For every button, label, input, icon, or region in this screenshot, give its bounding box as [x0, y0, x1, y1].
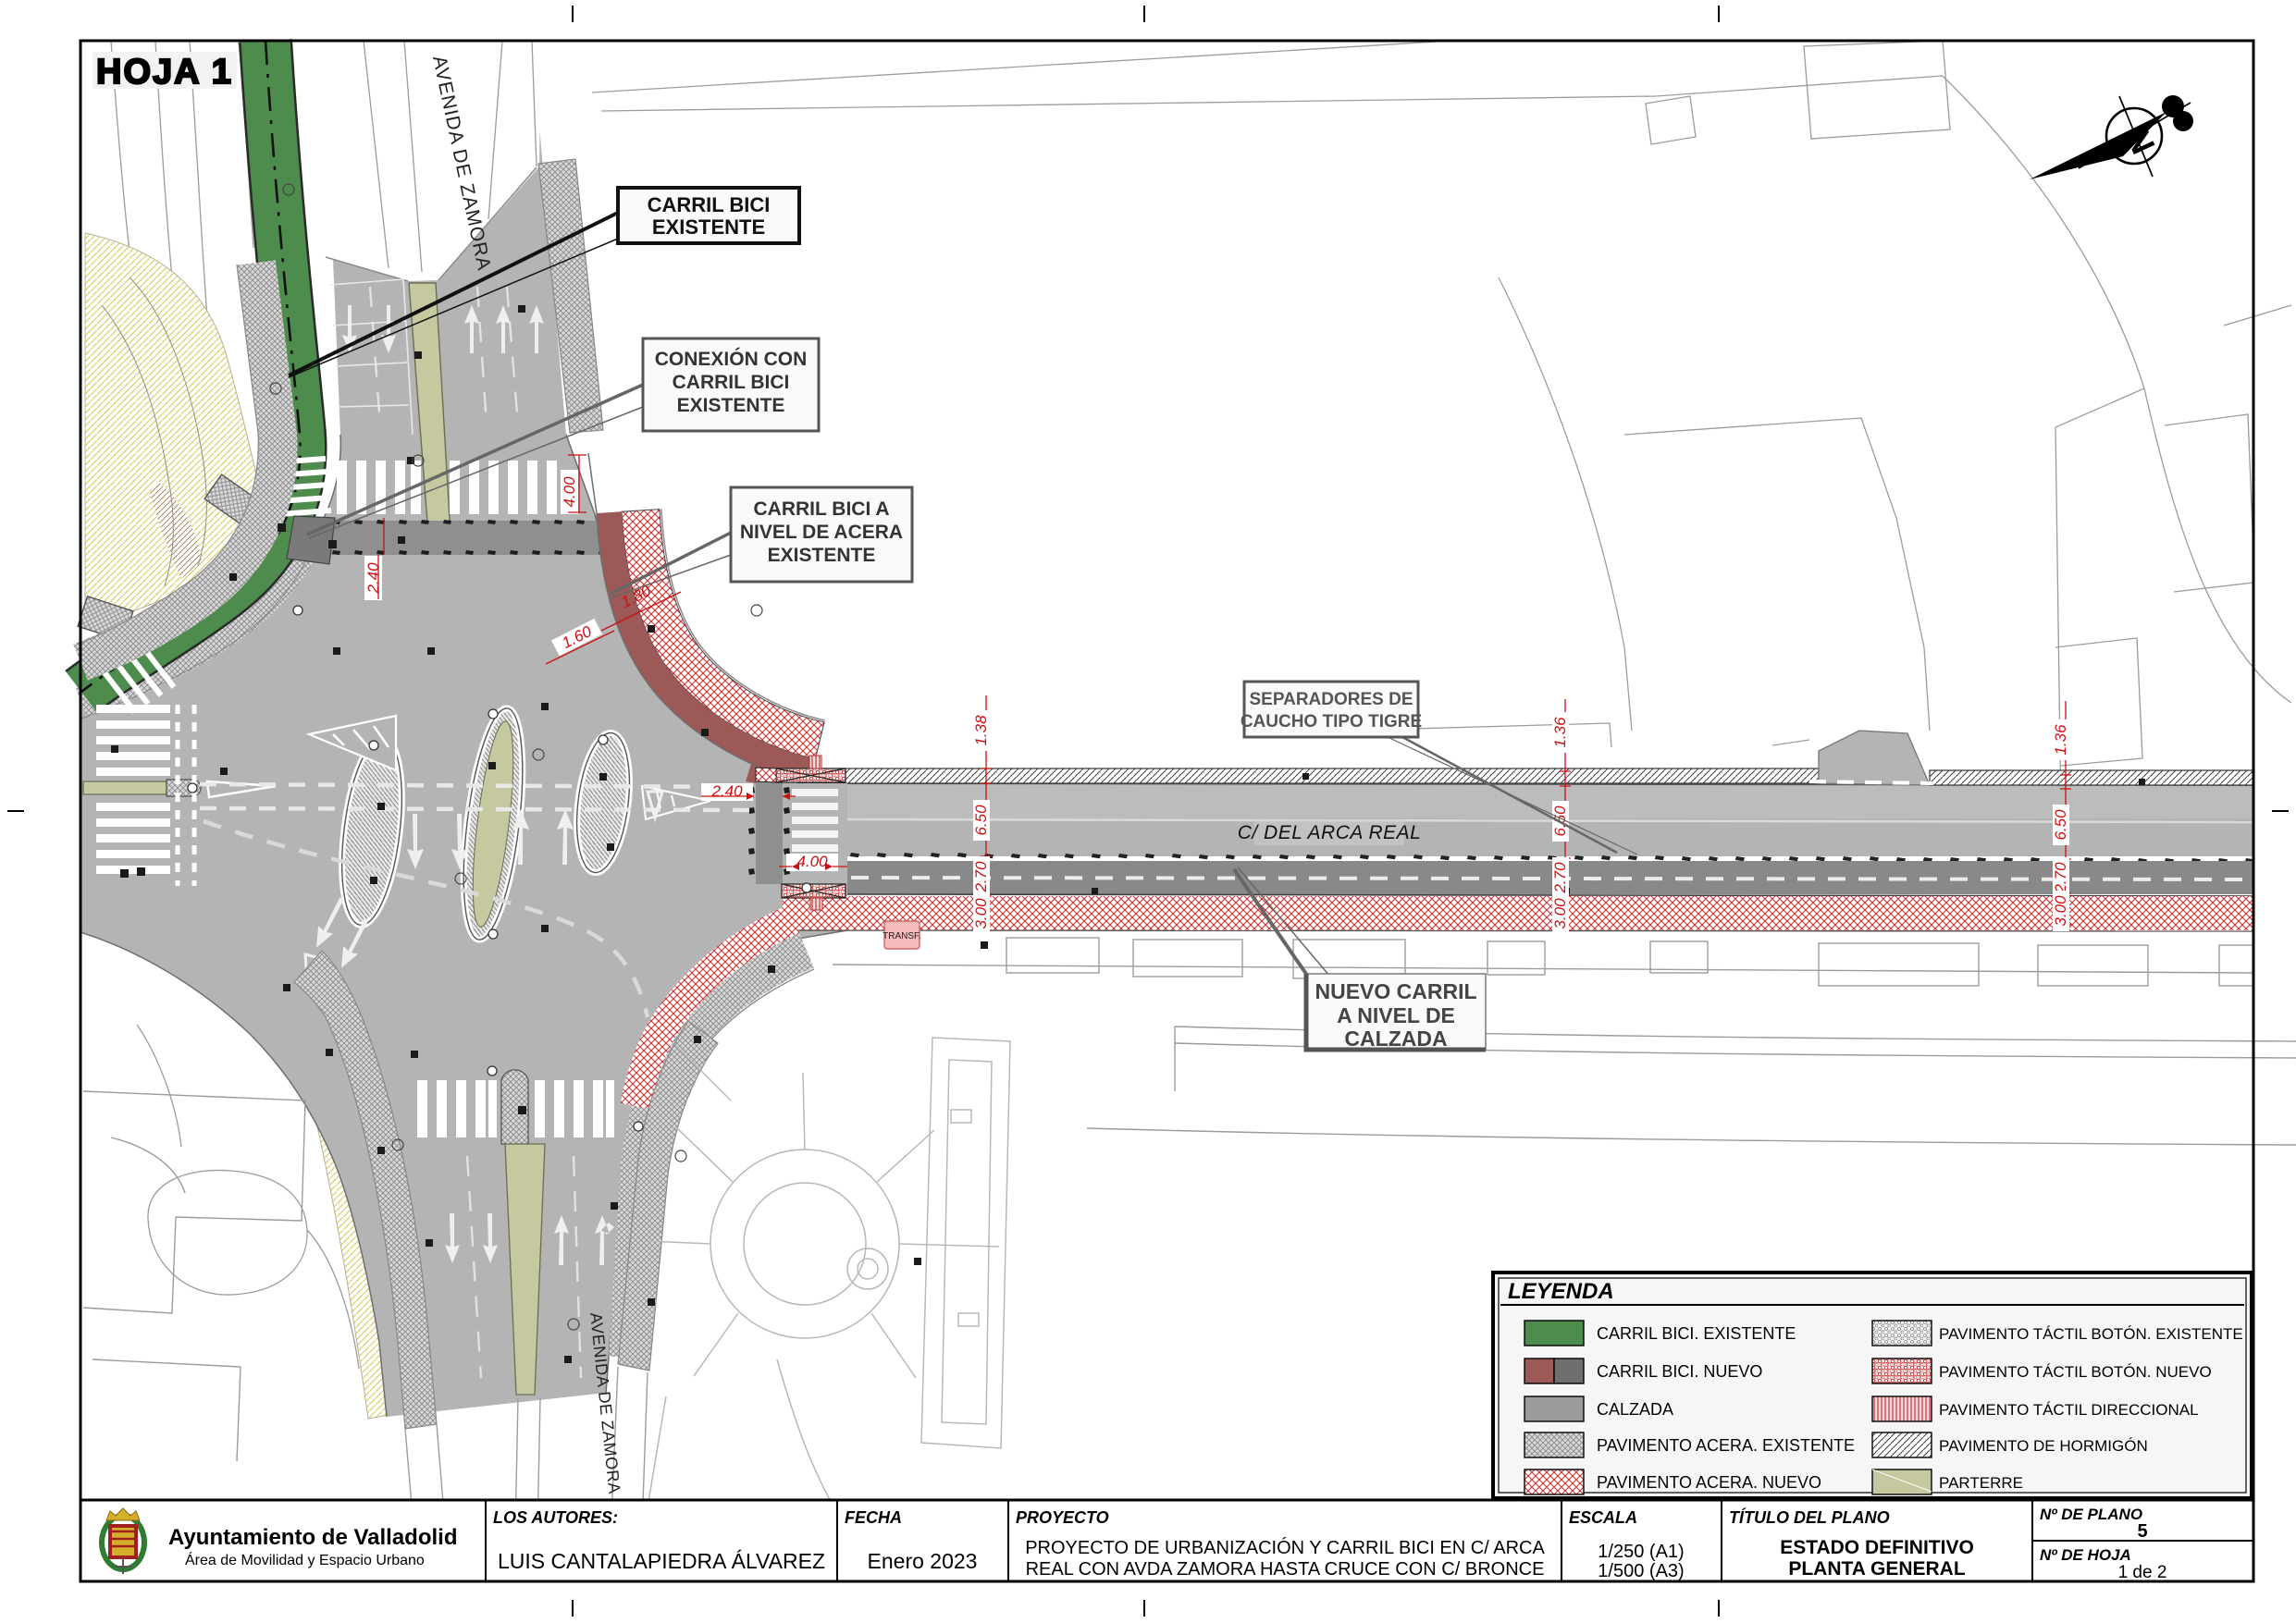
svg-text:CARRIL BICI: CARRIL BICI: [673, 372, 790, 393]
svg-text:REAL CON AVDA ZAMORA HASTA CRU: REAL CON AVDA ZAMORA HASTA CRUCE CON C/ …: [1026, 1559, 1545, 1580]
svg-text:1.36: 1.36: [1551, 717, 1569, 748]
svg-text:EXISTENTE: EXISTENTE: [677, 395, 785, 416]
svg-text:2.70: 2.70: [1551, 862, 1569, 894]
svg-text:3.00: 3.00: [972, 898, 990, 929]
svg-text:4.00: 4.00: [796, 853, 828, 870]
svg-text:LUIS CANTALAPIEDRA ÁLVAREZ: LUIS CANTALAPIEDRA ÁLVAREZ: [498, 1549, 825, 1573]
svg-text:1.38: 1.38: [972, 715, 990, 746]
svg-text:A NIVEL DE: A NIVEL DE: [1337, 1003, 1455, 1027]
svg-text:Enero 2023: Enero 2023: [868, 1549, 978, 1573]
svg-text:TRANSF.: TRANSF.: [883, 931, 921, 941]
svg-text:1.36: 1.36: [2052, 724, 2069, 756]
svg-text:5: 5: [2137, 1521, 2147, 1542]
svg-text:2.40: 2.40: [710, 782, 743, 800]
svg-text:ESCALA: ESCALA: [1569, 1508, 1637, 1527]
svg-text:EXISTENTE: EXISTENTE: [652, 215, 765, 239]
svg-text:CALZADA: CALZADA: [1597, 1400, 1673, 1419]
svg-text:CARRIL BICI A: CARRIL BICI A: [754, 498, 890, 520]
svg-text:NIVEL DE ACERA: NIVEL DE ACERA: [740, 522, 903, 543]
svg-text:LEYENDA: LEYENDA: [1508, 1279, 1614, 1304]
svg-text:CALZADA: CALZADA: [1344, 1027, 1447, 1051]
svg-text:EXISTENTE: EXISTENTE: [768, 545, 876, 566]
svg-text:4.00: 4.00: [561, 476, 578, 508]
svg-text:CAUCHO TIPO TIGRE: CAUCHO TIPO TIGRE: [1241, 712, 1422, 732]
svg-text:2.40: 2.40: [364, 562, 382, 595]
svg-text:PAVIMENTO ACERA. NUEVO: PAVIMENTO ACERA. NUEVO: [1597, 1473, 1821, 1492]
svg-text:Ayuntamiento de Valladolid: Ayuntamiento de Valladolid: [168, 1525, 458, 1550]
svg-text:SEPARADORES DE: SEPARADORES DE: [1249, 690, 1413, 709]
svg-text:HOJA 1: HOJA 1: [96, 53, 233, 92]
svg-text:CONEXIÓN CON: CONEXIÓN CON: [655, 348, 808, 370]
svg-text:ESTADO DEFINITIVO: ESTADO DEFINITIVO: [1780, 1537, 1974, 1558]
svg-text:1/500 (A3): 1/500 (A3): [1598, 1561, 1684, 1581]
svg-text:Área de Movilidad y Espacio Ur: Área de Movilidad y Espacio Urbano: [185, 1551, 425, 1568]
svg-text:PAVIMENTO TÁCTIL BOTÓN. NUEVO: PAVIMENTO TÁCTIL BOTÓN. NUEVO: [1939, 1363, 2212, 1381]
svg-text:CARRIL BICI. NUEVO: CARRIL BICI. NUEVO: [1597, 1362, 1762, 1381]
svg-text:3.00: 3.00: [1551, 898, 1569, 929]
svg-text:TÍTULO DEL PLANO: TÍTULO DEL PLANO: [1729, 1507, 1890, 1527]
svg-text:PARTERRE: PARTERRE: [1939, 1474, 2023, 1492]
svg-text:FECHA: FECHA: [845, 1508, 902, 1527]
svg-text:1/250 (A1): 1/250 (A1): [1598, 1542, 1684, 1562]
svg-text:6.50: 6.50: [972, 805, 990, 836]
svg-text:CARRIL BICI. EXISTENTE: CARRIL BICI. EXISTENTE: [1597, 1324, 1796, 1343]
svg-text:C/ DEL ARCA REAL: C/ DEL ARCA REAL: [1238, 822, 1422, 843]
svg-text:6.50: 6.50: [2052, 809, 2069, 841]
svg-text:2.70: 2.70: [972, 861, 990, 893]
svg-text:PAVIMENTO TÁCTIL BOTÓN. EXISTE: PAVIMENTO TÁCTIL BOTÓN. EXISTENTE: [1939, 1325, 2243, 1343]
svg-text:PROYECTO DE URBANIZACIÓN Y CAR: PROYECTO DE URBANIZACIÓN Y CARRIL BICI E…: [1025, 1537, 1545, 1558]
svg-text:2.70: 2.70: [2052, 862, 2069, 894]
svg-text:PROYECTO: PROYECTO: [1016, 1508, 1109, 1527]
svg-text:CARRIL BICI: CARRIL BICI: [648, 193, 771, 216]
svg-text:LOS AUTORES:: LOS AUTORES:: [493, 1508, 618, 1527]
svg-text:NUEVO CARRIL: NUEVO CARRIL: [1315, 979, 1476, 1003]
svg-text:Nº DE PLANO: Nº DE PLANO: [2040, 1506, 2142, 1523]
svg-text:PAVIMENTO TÁCTIL DIRECCIONAL: PAVIMENTO TÁCTIL DIRECCIONAL: [1939, 1401, 2199, 1419]
svg-text:PLANTA GENERAL: PLANTA GENERAL: [1788, 1558, 1966, 1580]
svg-text:1 de 2: 1 de 2: [2118, 1563, 2167, 1582]
svg-text:Nº DE HOJA: Nº DE HOJA: [2040, 1546, 2131, 1564]
svg-text:PAVIMENTO ACERA. EXISTENTE: PAVIMENTO ACERA. EXISTENTE: [1597, 1436, 1855, 1455]
svg-text:PAVIMENTO DE HORMIGÓN: PAVIMENTO DE HORMIGÓN: [1939, 1437, 2148, 1455]
svg-text:3.00: 3.00: [2052, 895, 2069, 927]
